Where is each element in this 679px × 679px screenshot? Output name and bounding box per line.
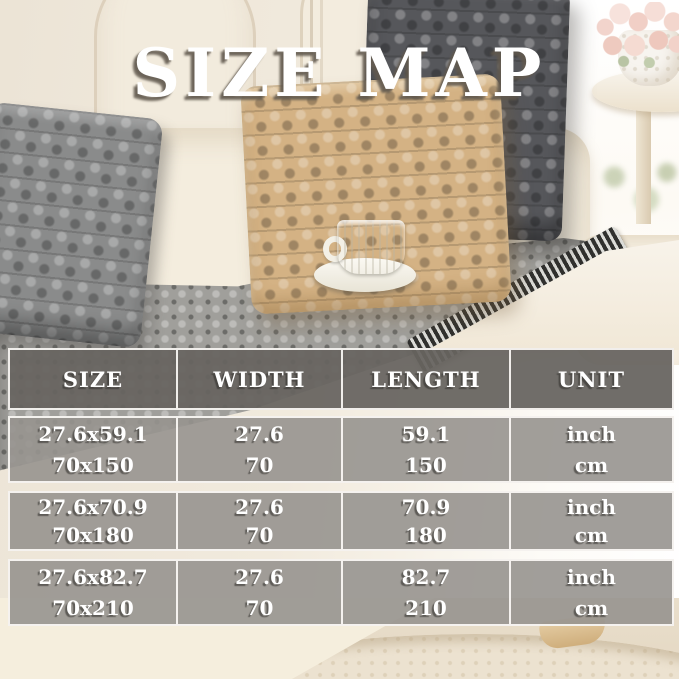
coffee-cup	[337, 220, 405, 274]
table-cell: 27.6x59.1	[10, 418, 176, 450]
table-cell: 27.6	[178, 418, 341, 450]
length-column: 70.9 180	[343, 493, 511, 549]
table-cell: 82.7	[343, 561, 509, 593]
table-cell: 27.6	[178, 561, 341, 593]
table-cell: 27.6	[178, 493, 341, 521]
table-row-group-3: 27.6x82.7 70x210 27.6 70 82.7 210 inch c…	[8, 559, 674, 626]
side-table-leg	[636, 104, 651, 224]
table-cell: 70x210	[10, 593, 176, 625]
unit-column: inch cm	[511, 418, 672, 481]
table-row-gap	[8, 551, 674, 559]
table-cell: 180	[343, 521, 509, 549]
size-column: 27.6x59.1 70x150	[10, 418, 178, 481]
table-cell: 70	[178, 593, 341, 625]
table-cell: inch	[511, 561, 672, 593]
table-cell: inch	[511, 418, 672, 450]
column-header: LENGTH	[343, 350, 509, 408]
length-column: 82.7 210	[343, 561, 511, 624]
table-cell: 70	[178, 521, 341, 549]
table-cell: 70	[178, 450, 341, 482]
table-cell: 70x150	[10, 450, 176, 482]
gray-armrest-pillow	[0, 102, 164, 349]
page-title: SIZE MAP	[0, 40, 679, 106]
header-col-width: WIDTH	[178, 350, 343, 408]
table-cell: inch	[511, 493, 672, 521]
unit-column: inch cm	[511, 561, 672, 624]
size-column: 27.6x82.7 70x210	[10, 561, 178, 624]
unit-column: inch cm	[511, 493, 672, 549]
header-col-size: SIZE	[10, 350, 178, 408]
table-cell: 150	[343, 450, 509, 482]
size-table: SIZE WIDTH LENGTH UNIT 27.6x59.1 70x150 …	[8, 348, 674, 626]
column-header: UNIT	[511, 350, 672, 408]
width-column: 27.6 70	[178, 418, 343, 481]
table-cell: 27.6x70.9	[10, 493, 176, 521]
length-column: 59.1 150	[343, 418, 511, 481]
table-row-gap	[8, 483, 674, 491]
width-column: 27.6 70	[178, 493, 343, 549]
table-cell: cm	[511, 450, 672, 482]
table-cell: cm	[511, 593, 672, 625]
table-header-row: SIZE WIDTH LENGTH UNIT	[8, 348, 674, 410]
header-col-length: LENGTH	[343, 350, 511, 408]
table-cell: 70x180	[10, 521, 176, 549]
column-header: SIZE	[10, 350, 176, 408]
size-column: 27.6x70.9 70x180	[10, 493, 178, 549]
table-cell: 27.6x82.7	[10, 561, 176, 593]
table-row-group-1: 27.6x59.1 70x150 27.6 70 59.1 150 inch c…	[8, 416, 674, 483]
header-col-unit: UNIT	[511, 350, 672, 408]
table-cell: 70.9	[343, 493, 509, 521]
table-row-group-2: 27.6x70.9 70x180 27.6 70 70.9 180 inch c…	[8, 491, 674, 551]
table-cell: 59.1	[343, 418, 509, 450]
table-cell: cm	[511, 521, 672, 549]
column-header: WIDTH	[178, 350, 341, 408]
table-cell: 210	[343, 593, 509, 625]
width-column: 27.6 70	[178, 561, 343, 624]
product-size-chart-image: SIZE MAP SIZE WIDTH LENGTH UNIT 27.6x59.…	[0, 0, 679, 679]
